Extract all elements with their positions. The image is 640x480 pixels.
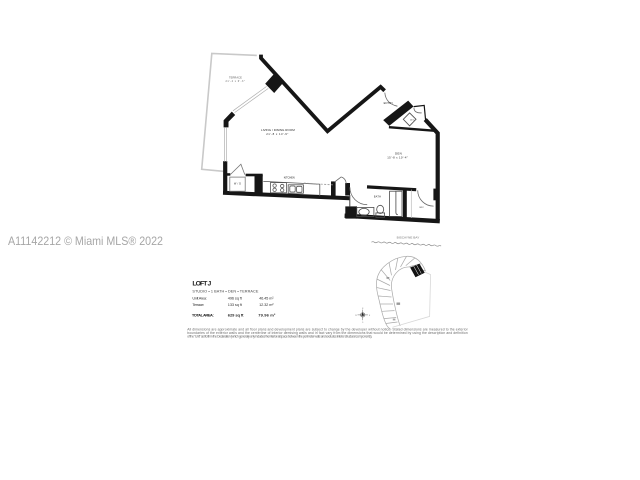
svg-text:W/D: W/D	[234, 182, 241, 185]
svg-text:W/C: W/C	[419, 207, 424, 209]
svg-text:629 sq ft: 629 sq ft	[228, 312, 244, 317]
svg-text:12.32 m²: 12.32 m²	[259, 302, 274, 307]
svg-text:Terrace:: Terrace:	[192, 302, 204, 307]
svg-text:A11142212 © Miami MLS® 2022: A11142212 © Miami MLS® 2022	[8, 234, 163, 248]
svg-text:21'-4 x 6'-3": 21'-4 x 6'-3"	[226, 80, 245, 83]
svg-text:79.96 m²: 79.96 m²	[258, 312, 276, 317]
svg-text:133 sq ft: 133 sq ft	[228, 302, 243, 307]
svg-text:46.45 m²: 46.45 m²	[259, 296, 274, 301]
svg-text:DEN: DEN	[395, 152, 402, 156]
svg-text:Unit Area:: Unit Area:	[192, 296, 206, 301]
svg-text:BATH: BATH	[374, 196, 381, 199]
svg-text:LOFT J: LOFT J	[192, 280, 211, 287]
svg-text:15'-8 x 10'-4": 15'-8 x 10'-4"	[387, 155, 407, 159]
svg-text:of the "Unit" set forth in the: of the "Unit" set forth in the Declarati…	[187, 334, 372, 338]
svg-text:LIVING / DINING ROOM: LIVING / DINING ROOM	[261, 128, 295, 132]
svg-text:496 sq ft: 496 sq ft	[228, 296, 243, 301]
svg-text:STUDIO • 1 BATH • DEN • TERRAC: STUDIO • 1 BATH • DEN • TERRACE	[192, 289, 258, 293]
svg-text:TOTAL AREA:: TOTAL AREA:	[192, 312, 214, 317]
